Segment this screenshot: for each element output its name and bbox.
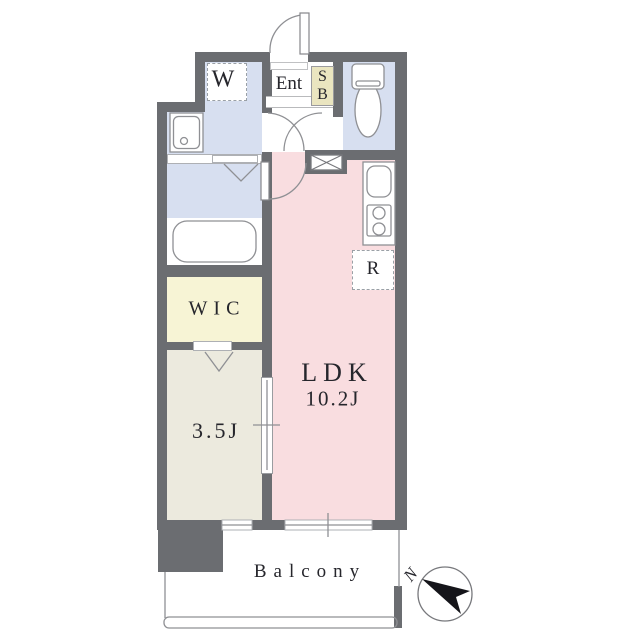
ldk-door-swing-arc — [269, 163, 306, 199]
ldk-size-label: 10.2J — [306, 387, 361, 412]
bedroom-window — [222, 520, 252, 530]
washroom-door-swing-arc — [268, 113, 304, 151]
compass — [418, 567, 472, 621]
entrance-door-swing-arc — [270, 15, 302, 53]
kitchen-counter — [363, 162, 395, 245]
shoebox-label-s: S — [318, 68, 327, 86]
duct-space-symbol — [311, 155, 342, 170]
wic-label: WIC — [189, 298, 246, 321]
balcony-label: Balcony — [254, 561, 366, 583]
counter — [363, 162, 395, 245]
refrigerator-label: R — [367, 258, 380, 280]
sliding-door-lines — [253, 380, 280, 470]
bathroom-folding-door-mark — [224, 164, 258, 181]
entrance-label: Ent — [276, 73, 302, 95]
shoebox-label: S B — [311, 66, 334, 106]
ldk-door-leaf — [261, 162, 269, 200]
vanity-sink — [170, 113, 203, 152]
ldk-label: LDK — [301, 358, 372, 388]
balcony-bottom-rail — [164, 617, 397, 628]
toilet-fixture — [352, 64, 384, 137]
washer-label: W — [212, 67, 235, 94]
bathtub — [173, 221, 256, 262]
shoebox-label-b: B — [317, 86, 328, 104]
toilet-bowl — [355, 83, 381, 137]
bedroom-size-label: 3.5J — [192, 418, 240, 444]
ldk-window — [285, 513, 372, 537]
wic-folding-door-mark — [205, 352, 233, 371]
entrance-door-leaf — [300, 13, 309, 54]
floorplan-canvas: W Ent S B WIC 3.5J LDK 10.2J R Balcony N — [0, 0, 640, 640]
